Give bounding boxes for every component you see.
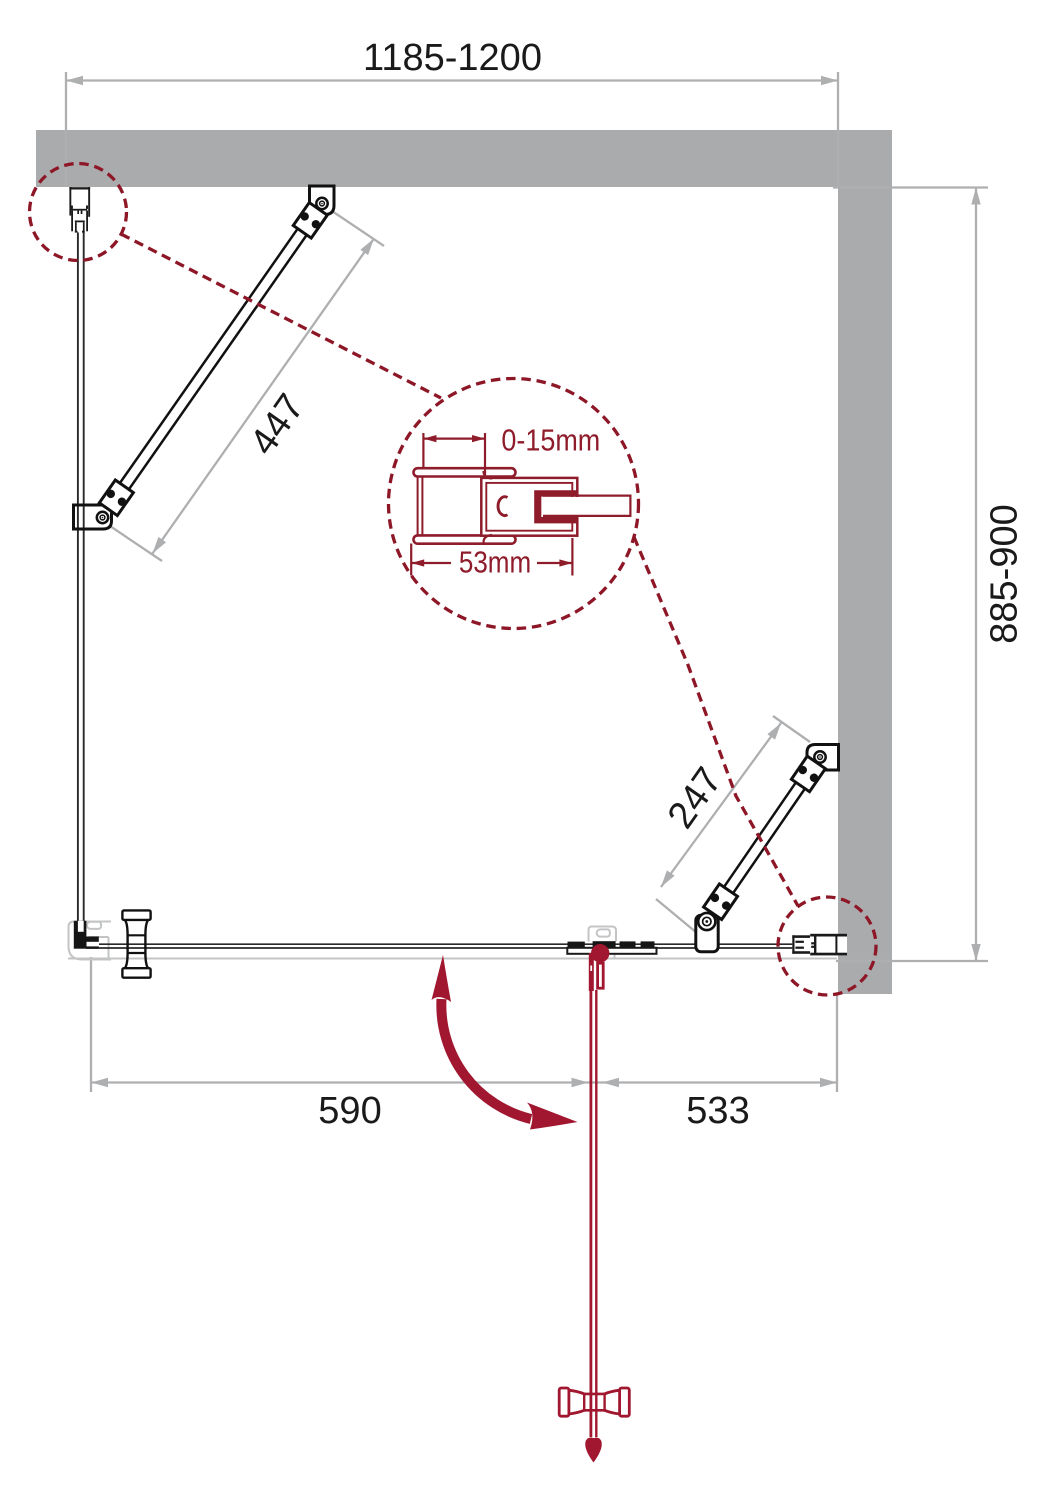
- svg-text:53mm: 53mm: [459, 545, 531, 580]
- svg-text:590: 590: [318, 1090, 381, 1132]
- svg-text:0-15mm: 0-15mm: [501, 424, 600, 458]
- svg-text:1185-1200: 1185-1200: [363, 37, 542, 79]
- svg-text:533: 533: [686, 1090, 749, 1132]
- svg-text:885-900: 885-900: [984, 504, 1026, 643]
